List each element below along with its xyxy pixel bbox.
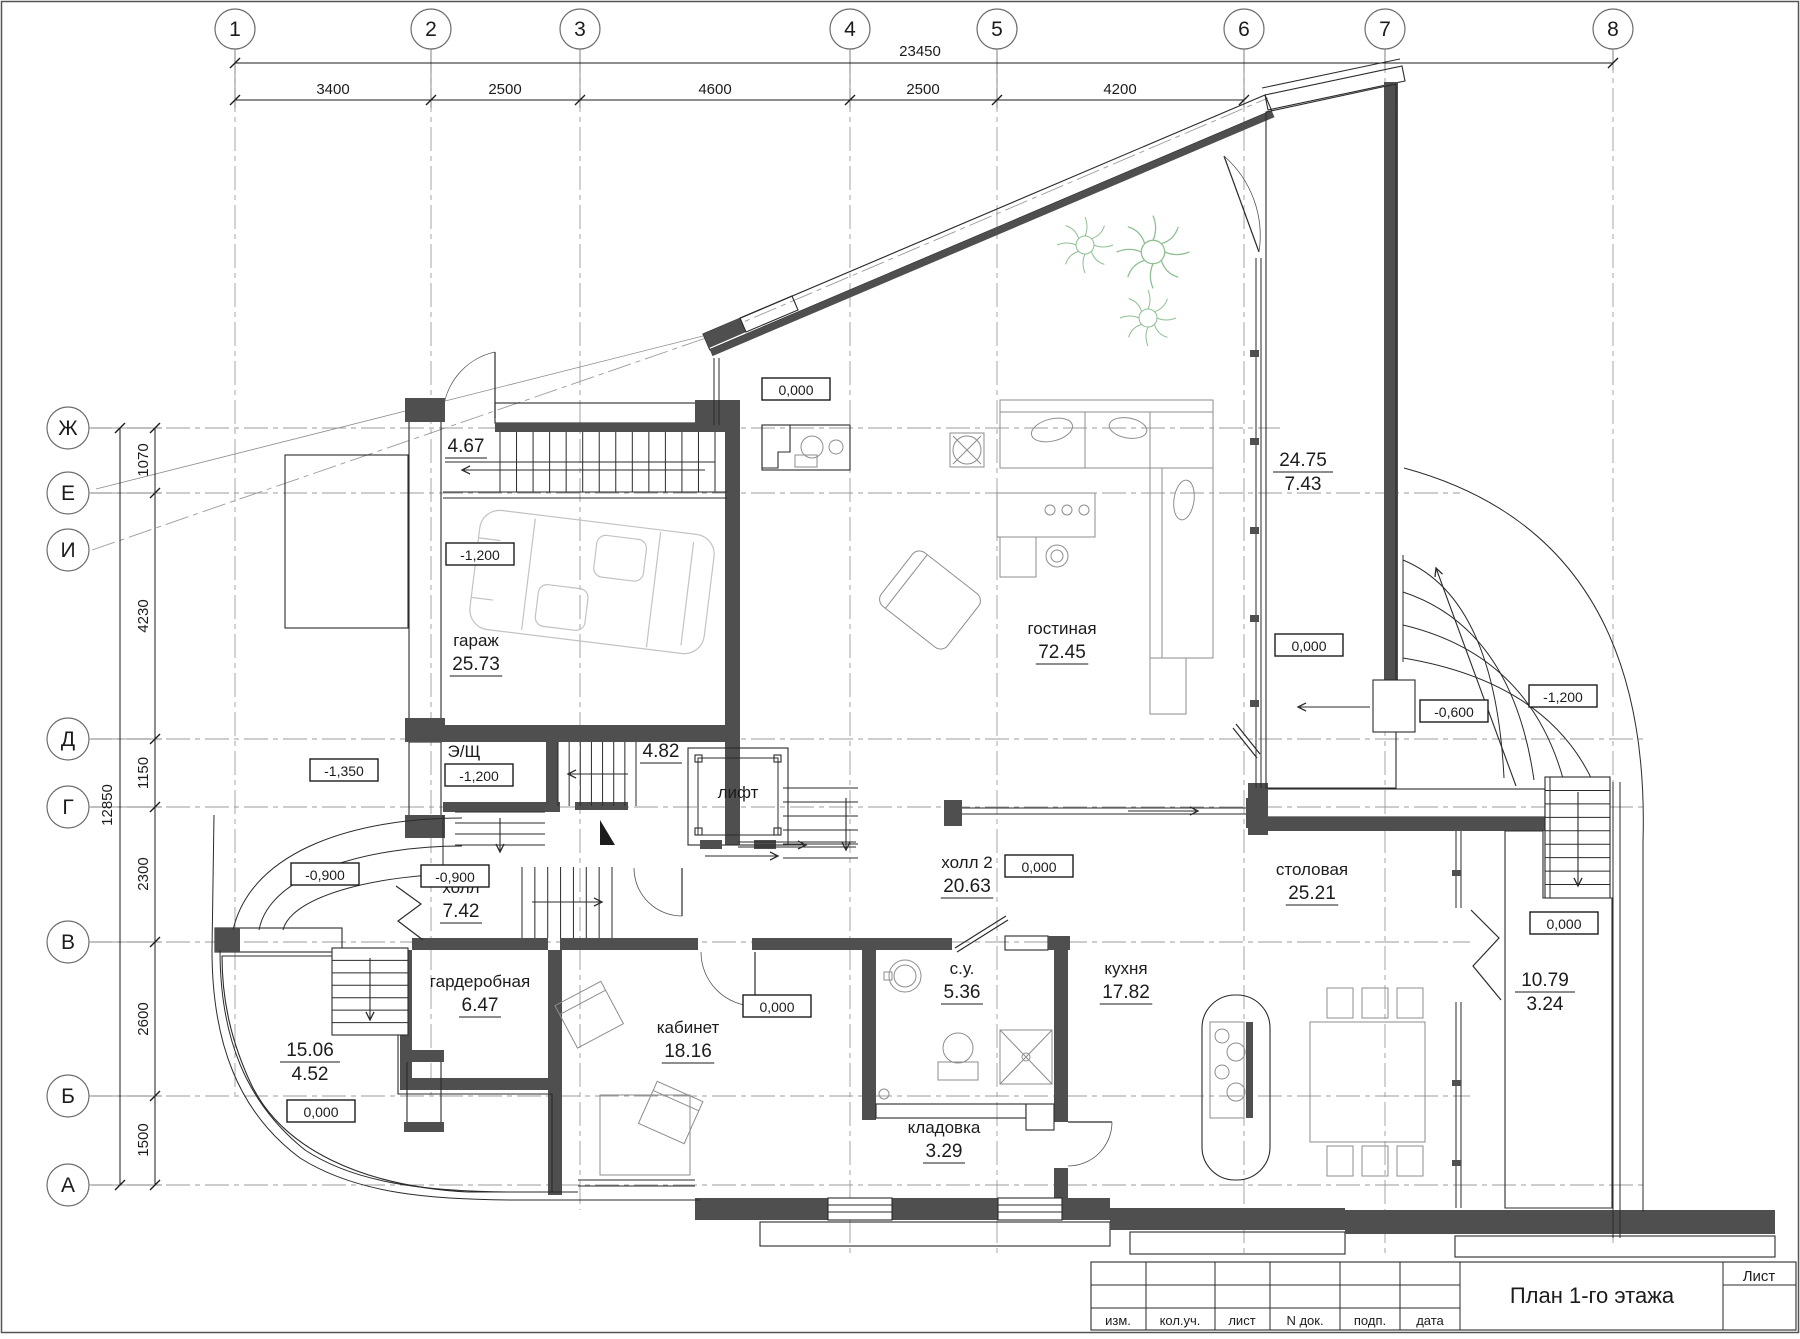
dim-left-segment: 1500 <box>135 1123 152 1156</box>
room-area: 18.16 <box>664 1041 712 1062</box>
title-block-column: лист <box>1228 1313 1255 1328</box>
room-area: 3.29 <box>926 1141 963 1162</box>
drawing-title: План 1-го этажа <box>1510 1283 1675 1308</box>
room-name: гараж <box>453 631 499 650</box>
elevation-value: 0,000 <box>1546 916 1581 932</box>
room-area: 6.47 <box>462 995 499 1016</box>
elevation-value: -0,600 <box>1434 704 1474 720</box>
room-area: 25.21 <box>1288 883 1336 904</box>
axis-label: Е <box>61 482 75 505</box>
room-name: холл 2 <box>941 853 992 872</box>
elevation-value: -1,200 <box>459 768 499 784</box>
garage-south-wall <box>408 725 740 742</box>
elevation-value: -1,200 <box>460 547 500 563</box>
elevation-value: 0,000 <box>759 999 794 1015</box>
room-name: Э/Щ <box>448 742 481 761</box>
room-area: 4.67 <box>448 436 485 457</box>
elevation-value: 0,000 <box>1021 859 1056 875</box>
axis-label: 8 <box>1607 18 1619 41</box>
terrace-area-lower: 3.24 <box>1527 994 1564 1015</box>
floor-plan-sheet: 12345678ЖЕИДГВБА 23450340025004600250042… <box>0 0 1800 1334</box>
title-block-column: подп. <box>1354 1313 1386 1328</box>
dim-left-segment: 1070 <box>135 443 152 476</box>
dim-top-segment: 2500 <box>488 81 521 98</box>
axis-label: 2 <box>425 18 437 41</box>
dim-top-segment: 2500 <box>906 81 939 98</box>
axis-label: 5 <box>991 18 1003 41</box>
room-area: 17.82 <box>1102 982 1150 1003</box>
room-name: гостиная <box>1027 619 1096 638</box>
elevation-value: 0,000 <box>778 382 813 398</box>
room-name: кладовка <box>908 1118 981 1137</box>
title-block-column: кол.уч. <box>1160 1313 1201 1328</box>
axis-label: 3 <box>574 18 586 41</box>
dim-total-width: 23450 <box>899 43 941 60</box>
terrace-area-lower: 4.52 <box>292 1064 329 1085</box>
dim-left-segment: 4230 <box>135 599 152 632</box>
dim-top-segment: 4200 <box>1103 81 1136 98</box>
dim-top-segment: 4600 <box>698 81 731 98</box>
floor-plan-drawing: 12345678ЖЕИДГВБА 23450340025004600250042… <box>0 0 1800 1334</box>
terrace-area-lower: 7.43 <box>1285 474 1322 495</box>
title-block-column: дата <box>1416 1313 1444 1328</box>
room-name: столовая <box>1276 860 1348 879</box>
elevation-value: 0,000 <box>303 1104 338 1120</box>
axis-label: И <box>60 539 75 562</box>
room-name: с.у. <box>950 959 975 978</box>
room-area: 4.82 <box>643 741 680 762</box>
sheet-label: Лист <box>1743 1268 1776 1285</box>
title-block-column: N док. <box>1286 1313 1323 1328</box>
axis-label: 1 <box>229 18 241 41</box>
axis-label: 7 <box>1379 18 1391 41</box>
elevation-value: -1,200 <box>1543 689 1583 705</box>
room-area: 5.36 <box>944 982 981 1003</box>
room-area: 20.63 <box>943 876 991 897</box>
room-area: 7.42 <box>443 901 480 922</box>
title-block-column: изм. <box>1105 1313 1131 1328</box>
dim-top-segment: 3400 <box>316 81 349 98</box>
axis-label: Б <box>61 1085 75 1108</box>
elevation-value: -0,900 <box>435 869 475 885</box>
axis-label: А <box>61 1174 75 1197</box>
exterior-landing <box>1373 680 1415 732</box>
room-name: кабинет <box>657 1018 720 1037</box>
elevation-value: -0,900 <box>305 867 345 883</box>
room-area: 72.45 <box>1038 642 1086 663</box>
terrace-area: 15.06 <box>286 1040 334 1061</box>
room-area: 25.73 <box>452 654 500 675</box>
elevation-value: -1,350 <box>324 763 364 779</box>
axis-label: 6 <box>1238 18 1250 41</box>
room-name: кухня <box>1104 959 1147 978</box>
axis-label: Ж <box>58 417 78 440</box>
axis-label: В <box>61 931 75 954</box>
room-name: гардеробная <box>430 972 530 991</box>
terrace-area: 24.75 <box>1279 450 1327 471</box>
dim-total-height: 12850 <box>99 784 116 826</box>
garage-east-wall <box>725 400 740 845</box>
terrace-area: 10.79 <box>1521 970 1569 991</box>
axis-label: 4 <box>844 18 856 41</box>
sheet-frame <box>2 2 1799 1333</box>
dim-left-segment: 2600 <box>135 1002 152 1035</box>
room-name: лифт <box>718 783 759 802</box>
dim-left-segment: 1150 <box>135 757 152 789</box>
dim-left-segment: 2300 <box>135 857 152 890</box>
elevation-value: 0,000 <box>1291 638 1326 654</box>
axis-label: Г <box>62 796 73 819</box>
axis-label: Д <box>61 728 75 751</box>
